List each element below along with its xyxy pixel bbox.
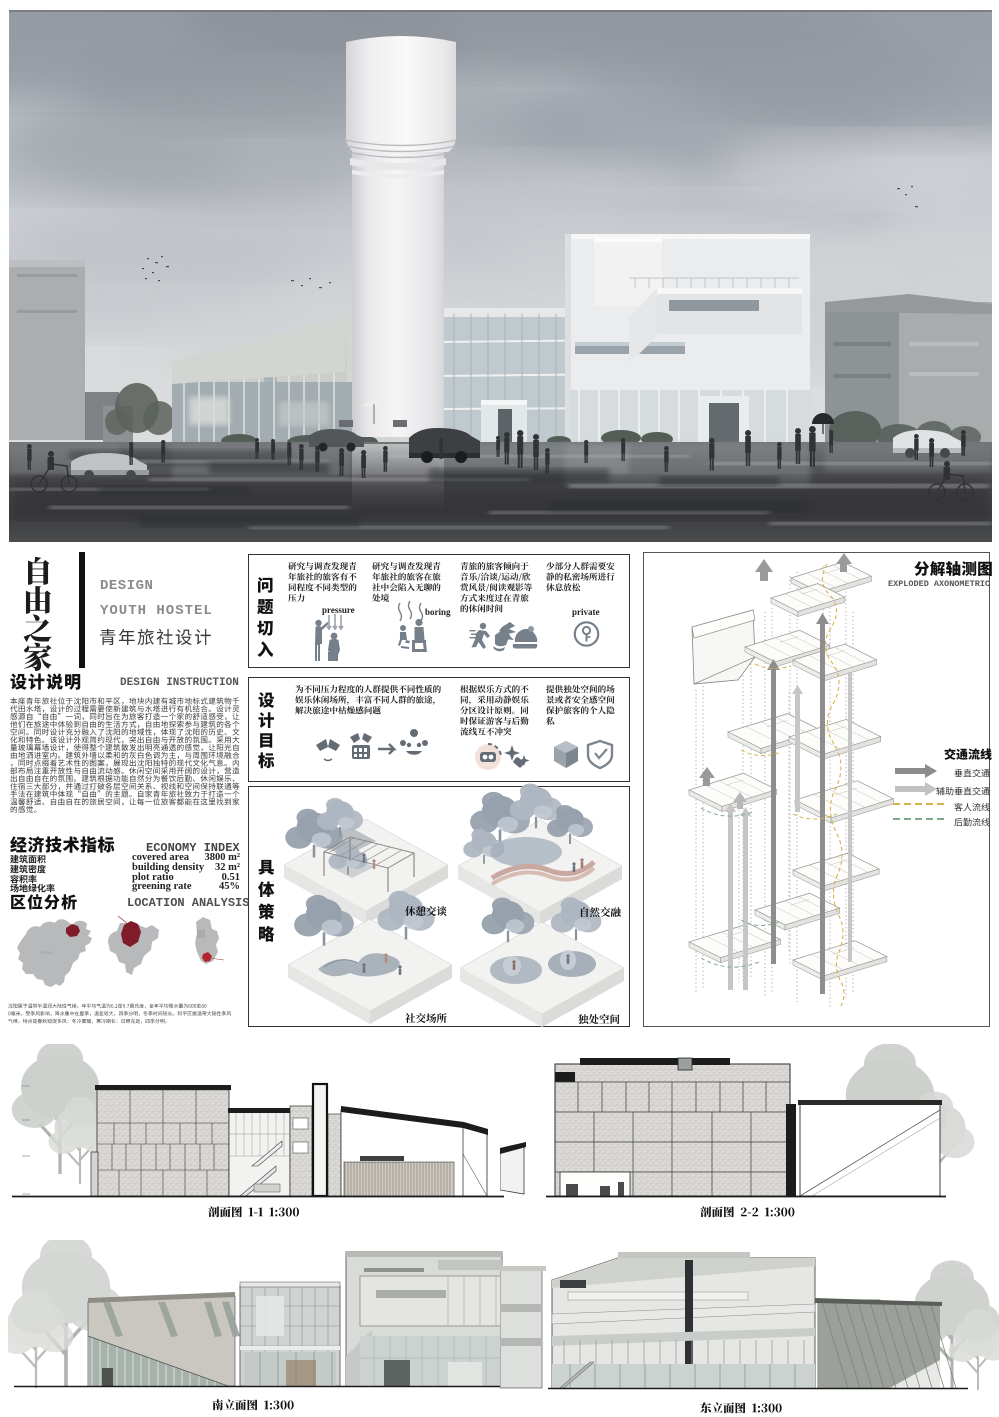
svg-text:pressure: pressure — [322, 605, 355, 615]
svg-text:boring: boring — [425, 607, 451, 617]
svg-text:CHINA: CHINA — [40, 950, 53, 955]
svg-text:private: private — [572, 607, 600, 617]
